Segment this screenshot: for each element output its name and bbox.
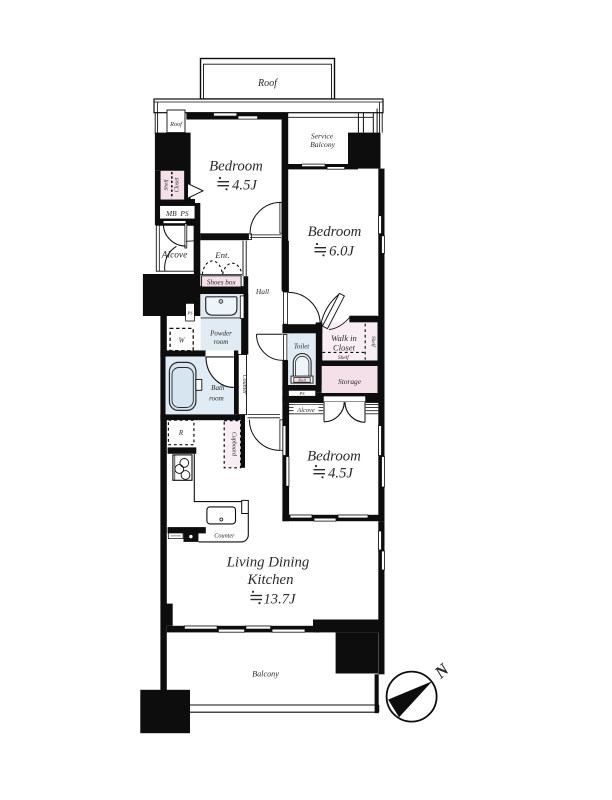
svg-text:room: room [209, 395, 224, 403]
svg-text:Storage: Storage [338, 377, 362, 386]
svg-text:Alcove: Alcove [296, 407, 315, 414]
svg-text:Balcony: Balcony [310, 140, 336, 149]
svg-text:Shelf: Shelf [298, 379, 307, 383]
svg-text:PS: PS [299, 391, 306, 396]
svg-text:Walk in: Walk in [331, 333, 357, 343]
svg-text:Bedroom: Bedroom [209, 159, 263, 175]
svg-text:Hall: Hall [255, 287, 269, 296]
svg-text:Ent.: Ent. [214, 250, 229, 260]
svg-text:Bedroom: Bedroom [307, 449, 361, 465]
svg-text:Powder: Powder [209, 330, 232, 338]
svg-text:6.0J: 6.0J [329, 244, 355, 260]
svg-text:Shoes box: Shoes box [207, 278, 237, 286]
svg-text:PS: PS [187, 310, 194, 315]
svg-text:13.7J: 13.7J [263, 591, 297, 607]
svg-text:Shelf: Shelf [370, 336, 377, 348]
svg-text:4.5J: 4.5J [328, 466, 354, 482]
svg-text:Roof: Roof [257, 78, 278, 89]
svg-text:Alcove: Alcove [161, 250, 188, 260]
svg-text:Shelf: Shelf [338, 354, 350, 361]
svg-text:Bedroom: Bedroom [308, 224, 362, 240]
svg-text:4.5J: 4.5J [232, 178, 258, 194]
svg-text:Counter: Counter [214, 533, 235, 540]
svg-text:MB PS: MB PS [165, 209, 189, 218]
svg-text:Cupboard: Cupboard [231, 432, 237, 457]
svg-text:Balcony: Balcony [252, 670, 279, 679]
svg-text:Closet: Closet [333, 343, 356, 353]
svg-text:Kitchen: Kitchen [246, 572, 293, 588]
svg-text:R: R [178, 429, 184, 437]
svg-text:room: room [214, 338, 229, 346]
svg-text:Living Dining: Living Dining [226, 555, 310, 571]
svg-text:Counter: Counter [241, 375, 247, 395]
svg-text:Roof: Roof [169, 121, 183, 128]
svg-text:Toilet: Toilet [294, 344, 310, 351]
svg-text:Shelf: Shelf [163, 178, 170, 190]
svg-text:Closet: Closet [175, 177, 181, 192]
